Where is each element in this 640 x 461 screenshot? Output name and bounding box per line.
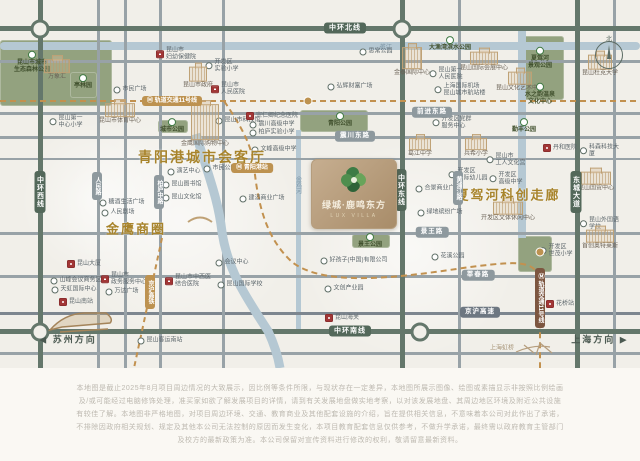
project-latin-name: LUX VILLA: [330, 213, 377, 219]
park-marker-icon: [366, 233, 374, 241]
poi-sketch: 首创奥特莱斯: [582, 230, 618, 251]
poi-dot: 昆山国际学校: [217, 282, 262, 289]
poi-red: 花桥站: [546, 300, 574, 308]
poi-marker-icon: [137, 338, 144, 345]
poi-dot: 科森科技大厦: [580, 144, 620, 157]
poi-marker-icon: [99, 200, 106, 207]
poi-label: 糖酒生活广场: [108, 200, 144, 207]
poi-red: 昆山南站: [59, 298, 93, 306]
poi-label: 水之韵温泉 文化中心: [525, 92, 555, 105]
poi-label: 演艺中心: [176, 169, 200, 176]
disclaimer-line: 有较佳了解。本地图非严格地图，对项目周边环境、交通、教育商业及其他配套设施的介绍…: [40, 408, 600, 421]
park-marker-icon: [336, 112, 344, 120]
poi-label: 花溪公园: [440, 254, 464, 261]
poi-red: 昆山市中西医 结合医院: [165, 274, 211, 287]
east-arrow-icon: ▶: [620, 335, 629, 345]
compass-needle-icon: [607, 45, 611, 59]
poi-label: 开发区党群 服务中心: [441, 116, 471, 129]
poi-label: 市民广场: [122, 87, 146, 94]
poi-marker-icon: [321, 258, 328, 265]
poi-marker-icon: [580, 148, 587, 155]
poi-dot: 花溪公园: [431, 254, 464, 261]
compass: 北: [595, 41, 623, 69]
poi-label: 昆山市体育中心: [99, 118, 141, 125]
poi-label: 天虹国际中心: [60, 287, 96, 294]
poi-label: 柏庐实验小学: [258, 130, 294, 137]
compass-north-label: 北: [606, 34, 612, 43]
road-pill: 中环东线: [396, 169, 407, 211]
poi-label: 昆山市 人民医院: [221, 82, 245, 95]
district-heading: 夏驾河科创走廊: [455, 185, 560, 204]
poi-label: 开发区 世茂小学: [548, 244, 572, 257]
park-marker-icon: [536, 47, 544, 55]
road-pill: Ⓜ 青阳港站: [231, 163, 273, 173]
road-pill: Ⓜ 轨道交通11号线: [142, 96, 202, 106]
poi-label: 昆山市政府: [183, 83, 213, 90]
poi-marker-icon: [489, 176, 496, 183]
poi-label: 夏驾河 景观公园: [528, 56, 552, 69]
road-pill: 黄浦江路: [453, 171, 463, 205]
direction-shanghai: 上海方向 ▶: [571, 333, 628, 346]
poi-label: 宗仁卿纪念医院: [256, 113, 298, 120]
road-pill: 京沪高铁: [145, 275, 155, 309]
poi-marker-icon: [580, 221, 587, 228]
hospital-marker-icon: [101, 275, 109, 283]
poi-marker-icon: [434, 87, 441, 94]
building-sketch-icon: [105, 103, 135, 117]
poi-label: 勤丰公园: [512, 127, 536, 134]
poi-label: 昆山杜克大学: [582, 71, 618, 78]
poi-marker-icon: [327, 84, 334, 91]
poi-marker-icon: [249, 130, 256, 137]
greentown-flower-icon: [341, 167, 367, 193]
poi-green: 大渔湾滨水公园: [429, 36, 471, 52]
hospital-marker-icon: [546, 300, 554, 308]
poi-label: 金泰国际中心: [394, 70, 430, 77]
disclaimer-line: 及校方的最新政策为准。本公司保留对宣传资料进行修改的权利，敬请留意最新资料。: [40, 434, 600, 447]
poi-dot: 昆山第一 中心小学: [49, 115, 82, 128]
hospital-marker-icon: [325, 314, 333, 322]
poi-green: 亭林园: [74, 74, 92, 90]
poi-label: 昆山客运南站: [146, 338, 182, 345]
poi-sketch: 昆山国贸中心: [578, 172, 614, 193]
park-marker-icon: [168, 118, 176, 126]
direction-suzhou: ◀ 苏州方向: [39, 333, 96, 346]
park-marker-icon: [536, 83, 544, 91]
poi-marker-icon: [217, 282, 224, 289]
park-marker-icon: [28, 51, 36, 59]
poi-dot: 昆山第一 人民医院: [429, 67, 462, 80]
road-pill: 中环北线: [324, 23, 366, 34]
poi-marker-icon: [324, 286, 331, 293]
poi-label: 科森科技大厦: [589, 144, 620, 157]
hospital-marker-icon: [67, 260, 75, 268]
poi-label: 葛江中学: [408, 151, 432, 158]
location-map: 中环北线中环南线中环西线中环东线东城大道前进东路震川东路景王路莘春路京沪高速人民…: [0, 0, 640, 368]
poi-label: 好孩子(中国)有限公司: [330, 258, 388, 265]
park-marker-icon: [520, 118, 528, 126]
poi-sketch: 开发区文体休闲中心: [481, 202, 535, 223]
poi-dot: 山峰会议商务区: [50, 278, 101, 285]
hospital-marker-icon: [59, 298, 67, 306]
poi-dot: 昆山客运南站: [137, 338, 182, 345]
poi-label: 昆山图书馆: [171, 182, 201, 189]
disclaimer-line: 及/或可能经过电脑修饰处理，准买家如欲了解发展项目的详情，请到有关发展地盘做实地…: [40, 395, 600, 408]
road-pill: 中环西线: [35, 171, 46, 213]
road-pill: 景王路: [416, 227, 449, 238]
poi-dot: 昆山图书馆: [162, 182, 201, 189]
poi-marker-icon: [113, 87, 120, 94]
poi-dot: 开发区党群 服务中心: [432, 116, 471, 129]
road-pill: 柏庐中路: [154, 175, 164, 209]
road-pill: 前进东路: [412, 107, 452, 118]
poi-label: 文创产业园: [333, 286, 363, 293]
poi-green: 景王公园: [358, 233, 382, 249]
road-pill: 震川东路: [335, 131, 375, 142]
poi-label: 昆山文化馆: [171, 195, 201, 202]
poi-marker-icon: [215, 260, 222, 267]
road-pill: 人民路: [92, 172, 102, 200]
building-sketch-icon: [586, 230, 614, 243]
poi-label: 绿地缤纷广场: [426, 210, 462, 217]
poi-label: 震川高级中学: [258, 122, 294, 129]
poi-marker-icon: [486, 157, 493, 164]
page: 中环北线中环南线中环西线中环东线东城大道前进东路震川东路景王路莘春路京沪高速人民…: [0, 0, 640, 461]
poi-red: 昆山市 人民医院: [211, 82, 245, 95]
poi-dot: 震川高级中学: [249, 122, 294, 129]
poi-marker-icon: [239, 196, 246, 203]
poi-label: 昆山大厦: [77, 261, 101, 268]
poi-green: 夏驾河 景观公园: [528, 47, 552, 69]
poi-label: 会议中心: [224, 260, 248, 267]
poi-marker-icon: [431, 254, 438, 261]
poi-label: 山峰会议商务区: [59, 278, 101, 285]
poi-label: 丹和医院: [553, 145, 577, 152]
poi-marker-icon: [415, 186, 422, 193]
building-sketch-icon: [470, 52, 498, 65]
poi-green: 勤丰公园: [512, 118, 536, 134]
disclaimer: 本地图是截止2025年8月项目周边情况的大致展示，因比例等条件所限，与现状存在一…: [0, 368, 640, 461]
poi-label: 昆山市 政务服务中心: [111, 272, 147, 285]
building-sketch-icon: [465, 138, 487, 150]
project-logo-card: 绿城·鹿鸣东方 LUX VILLA: [311, 159, 397, 229]
poi-sketch: 万象汇: [44, 59, 70, 81]
building-sketch-icon: [581, 172, 611, 185]
poi-sketch: 金泰国际中心: [394, 47, 430, 77]
poi-red: 宗仁卿纪念医院: [246, 112, 298, 120]
poi-label: 开发区 实验小学: [214, 59, 238, 72]
building-sketch-icon: [191, 104, 219, 140]
poi-marker-icon: [105, 289, 112, 296]
poi-dot: 市民广场: [113, 87, 146, 94]
poi-sketch: 昆山市政府: [183, 67, 213, 90]
poi-label: 景王公园: [358, 242, 382, 249]
poi-label: 昆山市 妇幼保健院: [166, 47, 196, 60]
building-sketch-icon: [409, 138, 431, 150]
hospital-marker-icon: [156, 50, 164, 58]
poi-marker-icon: [417, 210, 424, 217]
park-marker-icon: [446, 36, 454, 44]
poi-marker-icon: [49, 119, 56, 126]
poi-label: 思常公园: [368, 49, 392, 56]
poi-dot: 会议中心: [215, 260, 248, 267]
poi-label: 万象汇: [48, 74, 66, 81]
poi-sketch: 金鹰国际购物中心: [181, 104, 229, 148]
road-pill: 东城大道: [571, 171, 582, 213]
metro-station-dot: [536, 248, 545, 257]
poi-label: 昆山第一 中心小学: [58, 115, 82, 128]
poi-dot: 柏庐实验小学: [249, 130, 294, 137]
poi-label: 建滔商业广场: [248, 196, 284, 203]
bridge-icon: [188, 218, 212, 223]
poi-label: 花桥站: [556, 301, 574, 308]
poi-sketch: 昆山市体育中心: [99, 103, 141, 125]
poi-dot: 绿地缤纷广场: [417, 210, 462, 217]
road-pill: 京沪高速: [460, 307, 500, 318]
poi-label: 上海国际机场 昆山城市航站楼: [443, 83, 485, 96]
poi-label: 开发区文体休闲中心: [481, 216, 535, 223]
hospital-marker-icon: [211, 85, 219, 93]
poi-label: 青阳公园: [328, 121, 352, 128]
poi-dot: 昆山市 工人文化宫: [486, 153, 525, 166]
hongqiao-label: 上海虹桥: [490, 343, 514, 352]
poi-marker-icon: [432, 120, 439, 127]
building-sketch-icon: [402, 47, 422, 69]
poi-green: 水之韵温泉 文化中心: [525, 83, 555, 105]
poi-label: 昆山国际学校: [226, 282, 262, 289]
building-sketch-icon: [493, 202, 523, 215]
poi-sketch: 昆山国际会展中心: [460, 52, 508, 73]
hospital-marker-icon: [246, 112, 254, 120]
poi-marker-icon: [101, 210, 108, 217]
poi-red: 丹和医院: [543, 144, 577, 152]
poi-sketch: 葛江中学: [408, 138, 432, 158]
poi-dot: 好孩子(中国)有限公司: [321, 258, 388, 265]
poi-label: 昆山海关: [335, 315, 359, 322]
disclaimer-line: 不排除因政府相关规划、规定及其他本公司无法控制的原因而发生变化，本项目教育配套信…: [40, 421, 600, 434]
plane-icon: [516, 343, 552, 355]
building-sketch-icon: [44, 59, 70, 73]
poi-label: 弘辉财富广场: [336, 84, 372, 91]
district-heading: 金鹰商圈: [106, 219, 166, 238]
poi-dot: 昆山文化馆: [162, 195, 201, 202]
poi-red: 昆山大厦: [67, 260, 101, 268]
poi-label: 万达广场: [114, 289, 138, 296]
poi-marker-icon: [359, 49, 366, 56]
poi-label: 首创奥特莱斯: [582, 244, 618, 251]
poi-dot: 思常公园: [359, 49, 392, 56]
poi-label: 昆山市 工人文化宫: [495, 153, 525, 166]
building-sketch-icon: [189, 67, 207, 82]
poi-dot: 万达广场: [105, 289, 138, 296]
disclaimer-line: 本地图是截止2025年8月项目周边情况的大致展示，因比例等条件所限，与现状存在一…: [40, 382, 600, 395]
poi-red: 昆山市 妇幼保健院: [156, 47, 196, 60]
hospital-marker-icon: [543, 144, 551, 152]
metro-station-dot: [304, 97, 313, 106]
road-pill: 中环南线: [329, 326, 371, 337]
poi-label: 昆山南站: [69, 299, 93, 306]
poi-red: 昆山市 政务服务中心: [101, 272, 147, 285]
poi-dot: 文创产业园: [324, 286, 363, 293]
poi-red: 昆山海关: [325, 314, 359, 322]
hospital-marker-icon: [165, 277, 173, 285]
road-pill: Ⓜ 轨道交通11号线: [535, 268, 545, 328]
poi-label: 昆山市中西医 结合医院: [175, 274, 211, 287]
project-name: 绿城·鹿鸣东方: [322, 198, 386, 211]
poi-dot: 建滔商业广场: [239, 196, 284, 203]
poi-marker-icon: [167, 169, 174, 176]
poi-marker-icon: [429, 71, 436, 78]
poi-dot: 弘辉财富广场: [327, 84, 372, 91]
poi-label: 兵希小学: [464, 151, 488, 158]
poi-green: 青阳公园: [328, 112, 352, 128]
poi-marker-icon: [50, 278, 57, 285]
poi-dot: 天虹国际中心: [51, 287, 96, 294]
road-pill: 莘春路: [462, 270, 495, 281]
poi-marker-icon: [249, 122, 256, 129]
park-marker-icon: [79, 74, 87, 82]
train-icon: [50, 313, 111, 332]
poi-dot: 上海国际机场 昆山城市航站楼: [434, 83, 485, 96]
poi-label: 昆山第一 人民医院: [438, 67, 462, 80]
poi-sketch: 兵希小学: [464, 138, 488, 158]
poi-label: 昆山国贸中心: [578, 186, 614, 193]
poi-label: 人民剧场: [110, 210, 134, 217]
poi-dot: 糖酒生活广场: [99, 200, 144, 207]
poi-dot: 人民剧场: [101, 210, 134, 217]
poi-label: 亭林园: [74, 83, 92, 90]
poi-marker-icon: [51, 287, 58, 294]
poi-dot: 演艺中心: [167, 169, 200, 176]
river-label: 金鸡河: [294, 176, 303, 194]
west-arrow-icon: ◀: [39, 335, 48, 345]
